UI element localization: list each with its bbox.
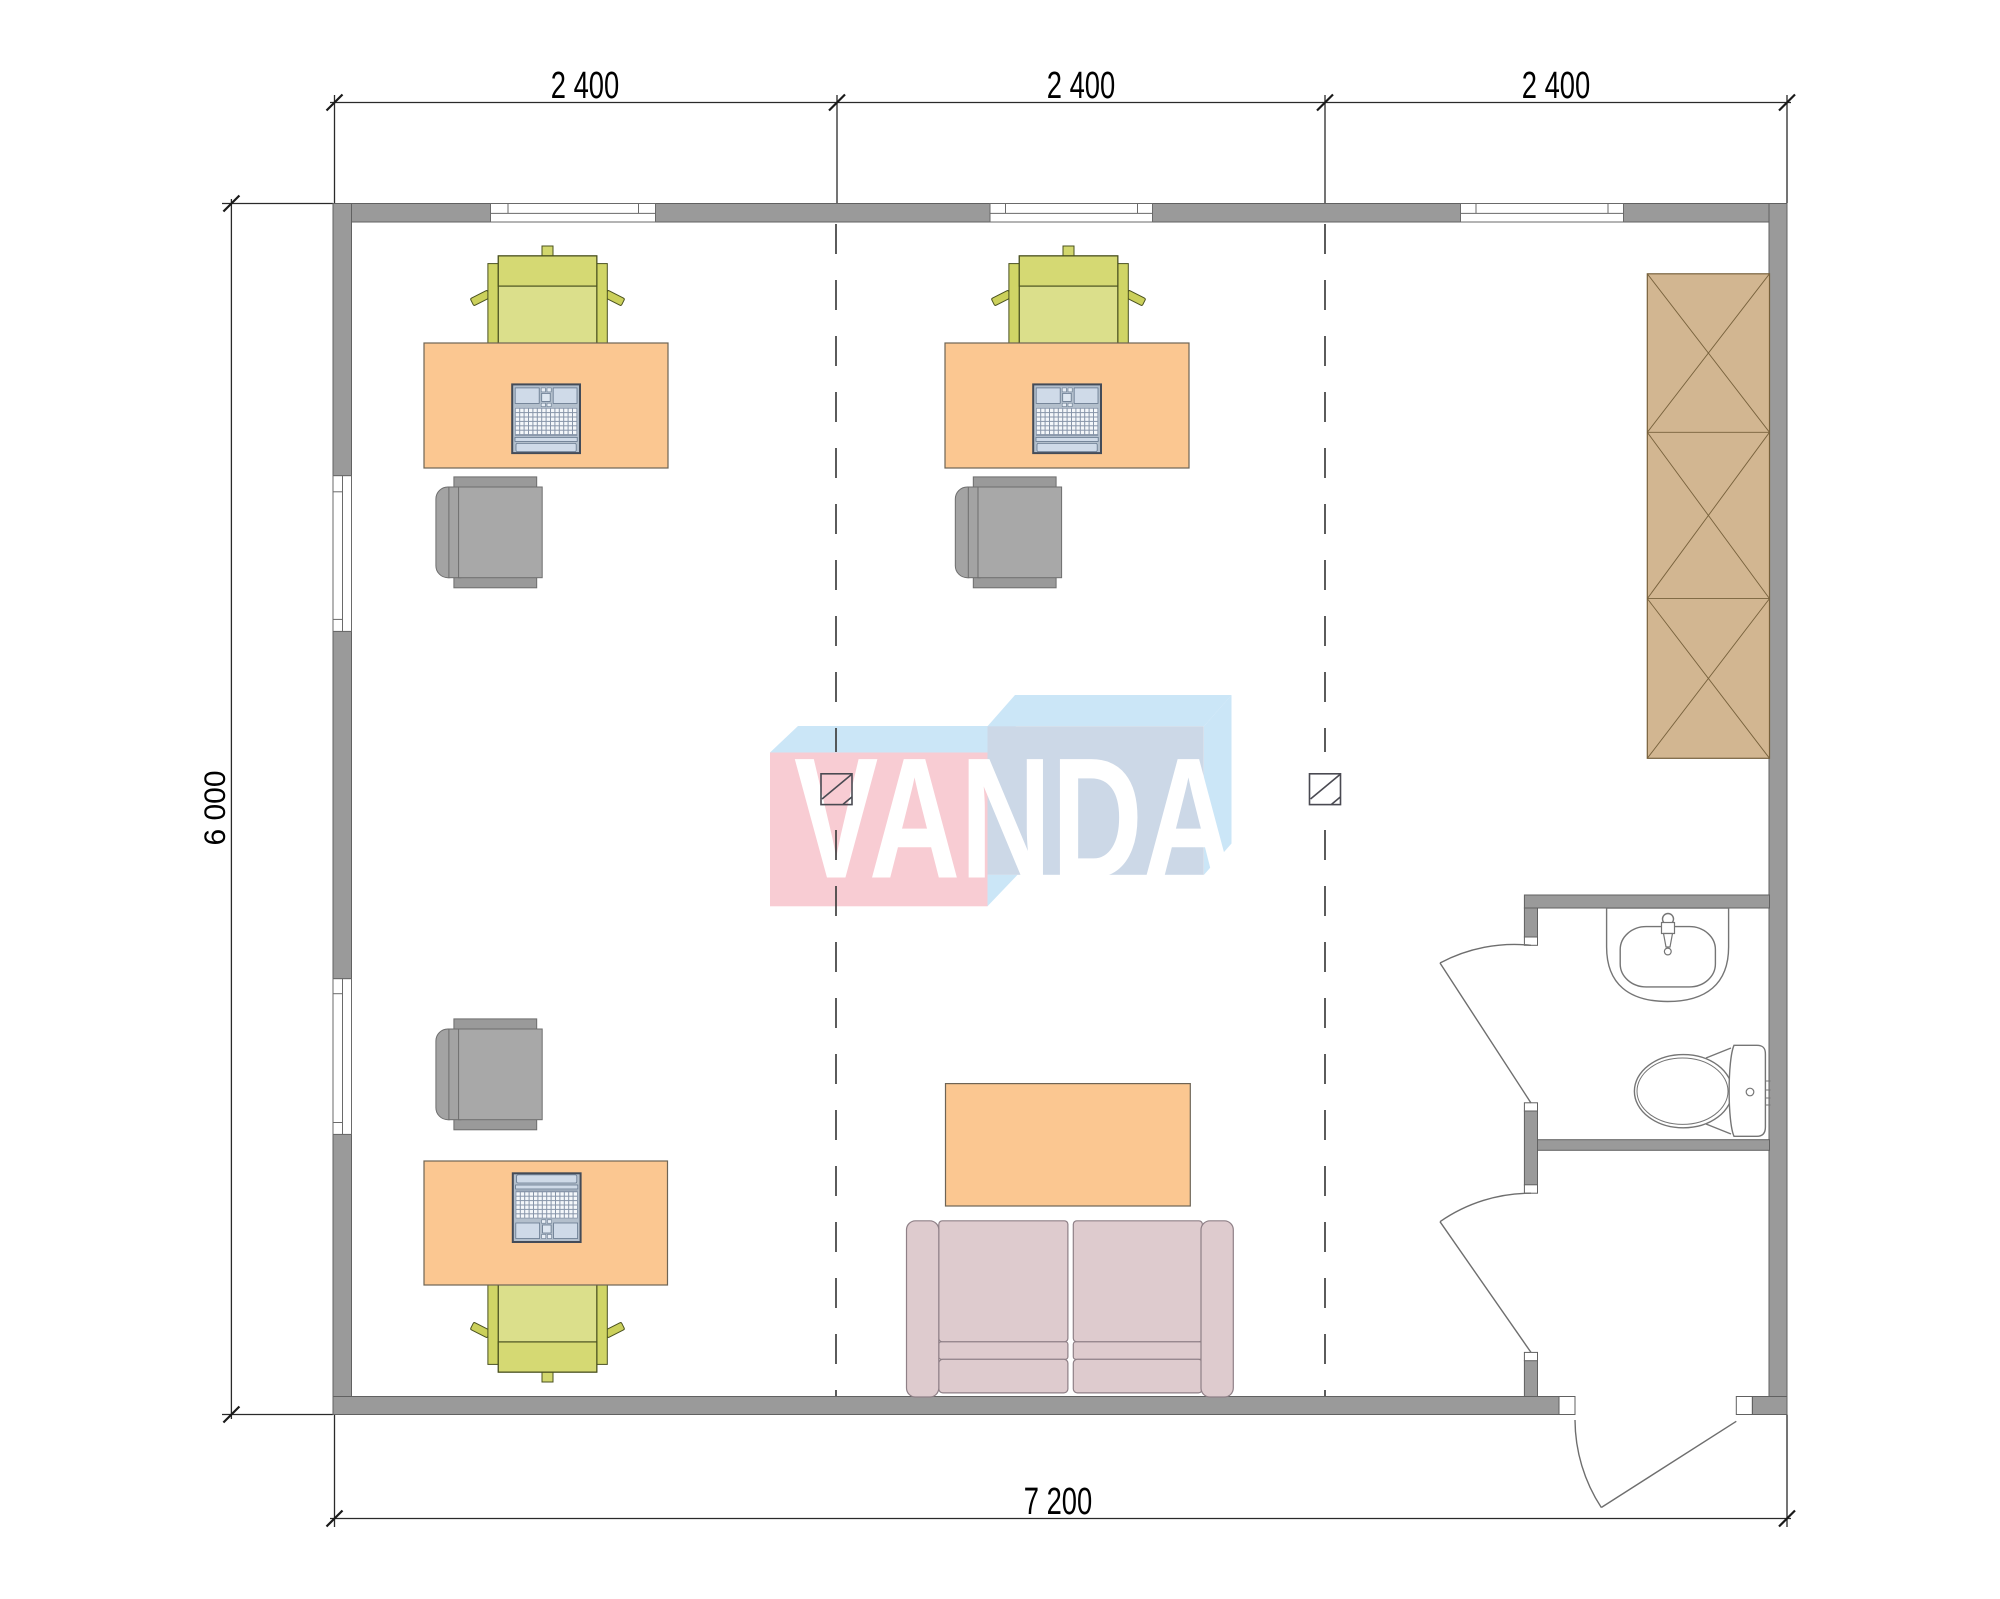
svg-text:2 400: 2 400 (1522, 65, 1590, 107)
svg-text:6 000: 6 000 (199, 770, 232, 845)
svg-text:7 200: 7 200 (1024, 1481, 1092, 1523)
svg-text:2 400: 2 400 (551, 65, 619, 107)
svg-text:VANDA: VANDA (794, 721, 1234, 914)
svg-text:2 400: 2 400 (1047, 65, 1115, 107)
